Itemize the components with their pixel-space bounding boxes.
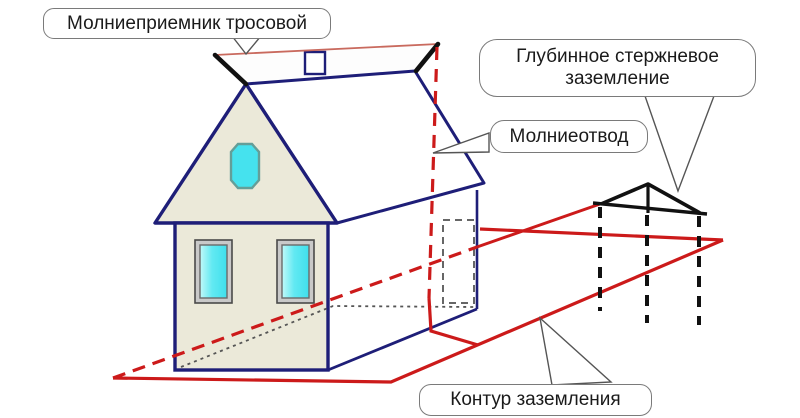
callout-down-conductor-label: Молниеотвод — [510, 126, 629, 148]
attic-window — [231, 144, 259, 188]
chimney — [305, 52, 325, 74]
window-right — [277, 240, 314, 303]
callout-cable-receiver: Молниеприемник тросовой — [43, 8, 331, 39]
callout-deep-rod-grounding: Глубинное стержневое заземление — [479, 39, 756, 97]
pointer-ground-loop-callout — [540, 318, 611, 385]
pointer-deep-rod-callout — [645, 96, 714, 191]
callout-deep-rod-line2: заземление — [565, 68, 670, 90]
loop-to-rod-connector — [477, 204, 600, 247]
callout-ground-loop-label: Контур заземления — [450, 389, 620, 411]
window-left — [195, 240, 232, 303]
callout-cable-receiver-label: Молниеприемник тросовой — [67, 13, 307, 35]
callout-ground-loop: Контур заземления — [419, 384, 652, 416]
callout-down-conductor: Молниеотвод — [490, 120, 648, 153]
lightning-protection-diagram: Молниеприемник тросовой Глубинное стержн… — [0, 0, 800, 418]
callout-deep-rod-line1: Глубинное стержневое — [516, 46, 719, 68]
